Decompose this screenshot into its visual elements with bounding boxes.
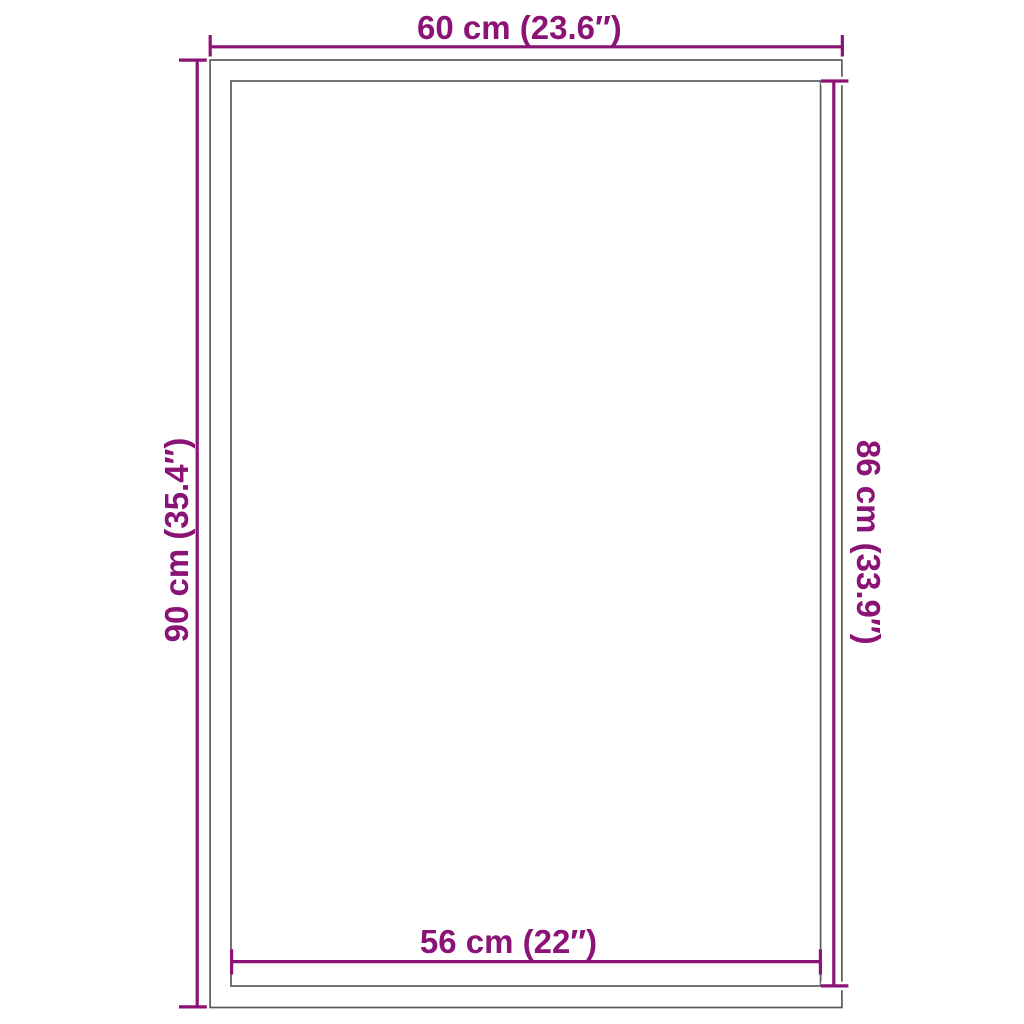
svg-text:60 cm (23.6″): 60 cm (23.6″) bbox=[417, 9, 622, 46]
svg-text:90 cm (35.4″): 90 cm (35.4″) bbox=[158, 438, 195, 643]
svg-text:56 cm (22″): 56 cm (22″) bbox=[420, 923, 597, 960]
svg-text:86 cm (33.9″): 86 cm (33.9″) bbox=[850, 440, 887, 645]
